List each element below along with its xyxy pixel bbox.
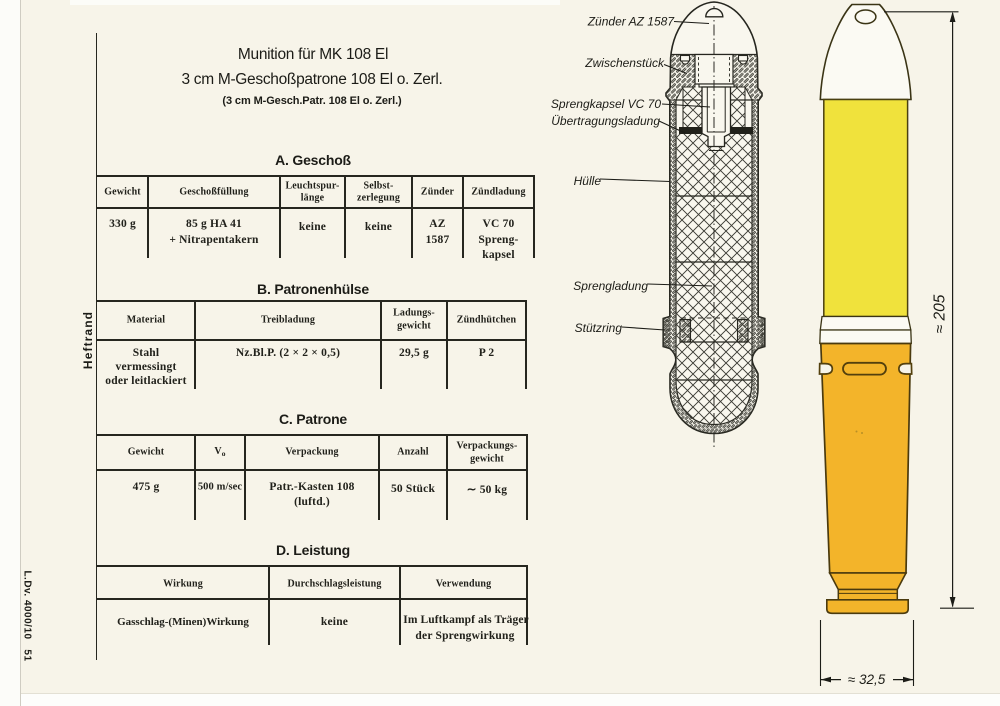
svg-text:Zünder AZ 1587: Zünder AZ 1587 bbox=[587, 15, 676, 29]
svg-text:Stützring: Stützring bbox=[575, 321, 623, 335]
svg-text:≈ 205: ≈ 205 bbox=[932, 294, 949, 333]
svg-text:Übertragungsladung: Übertragungsladung bbox=[551, 114, 660, 128]
svg-text:Sprengladung: Sprengladung bbox=[573, 279, 648, 293]
svg-text:Zwischenstück: Zwischenstück bbox=[584, 56, 665, 70]
svg-text:≈ 32,5: ≈ 32,5 bbox=[848, 672, 886, 687]
svg-text:Hülle: Hülle bbox=[574, 174, 602, 188]
svg-text:Sprengkapsel VC 70: Sprengkapsel VC 70 bbox=[551, 97, 661, 111]
